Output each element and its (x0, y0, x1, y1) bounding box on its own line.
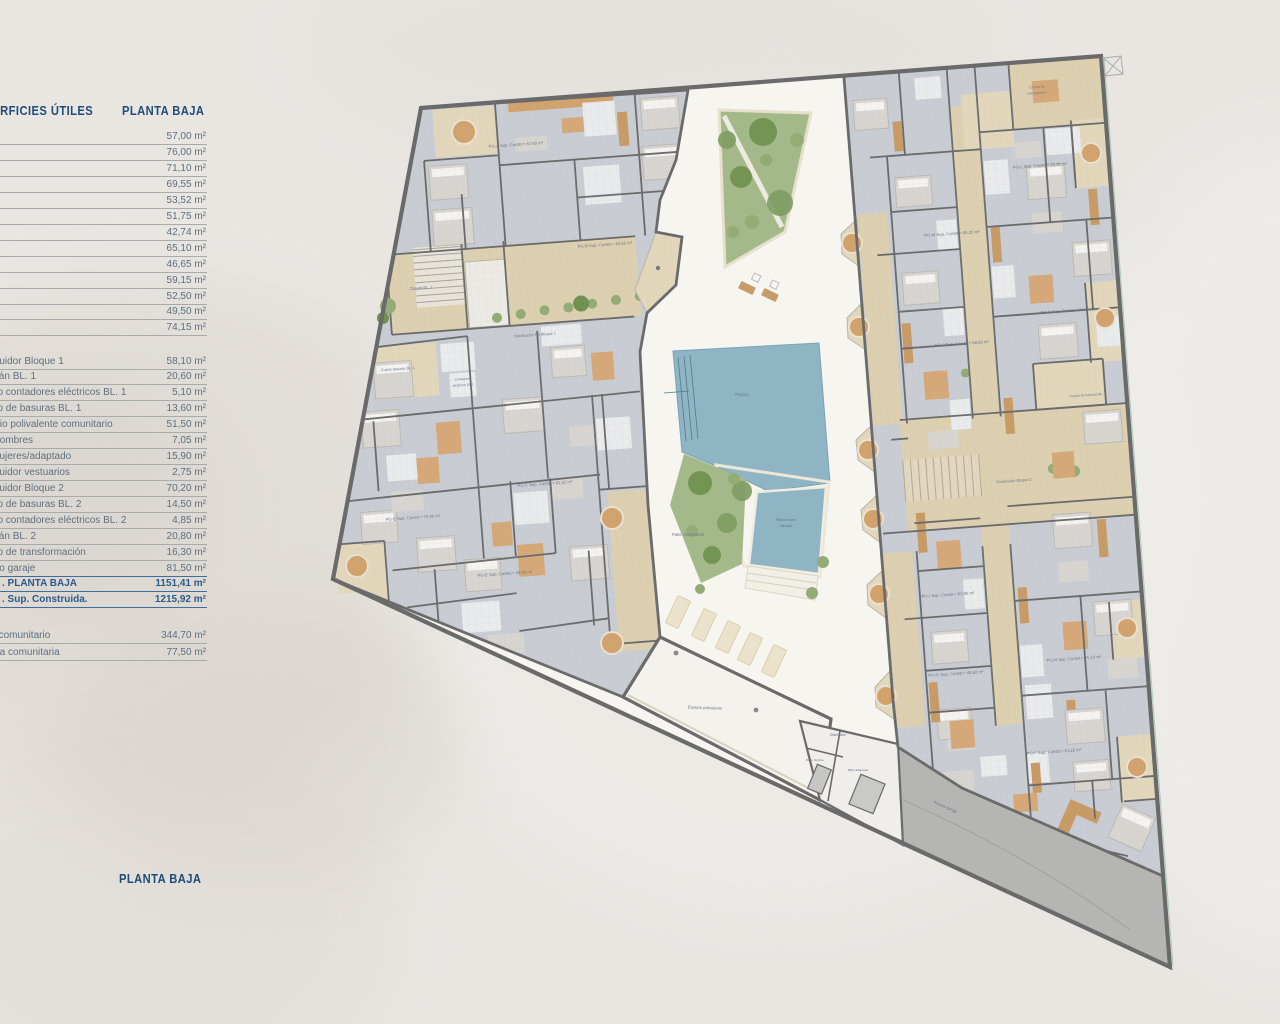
svg-text:Piscina: Piscina (735, 392, 749, 397)
svg-text:Piscina sobre: Piscina sobre (776, 518, 796, 522)
svg-text:Patio comunitario: Patio comunitario (672, 532, 705, 537)
svg-text:Baño adaptado: Baño adaptado (848, 768, 869, 772)
svg-text:Distribuidor: Distribuidor (830, 733, 847, 737)
svg-text:elevada: elevada (780, 524, 792, 528)
svg-text:Baño hombre: Baño hombre (806, 758, 824, 762)
